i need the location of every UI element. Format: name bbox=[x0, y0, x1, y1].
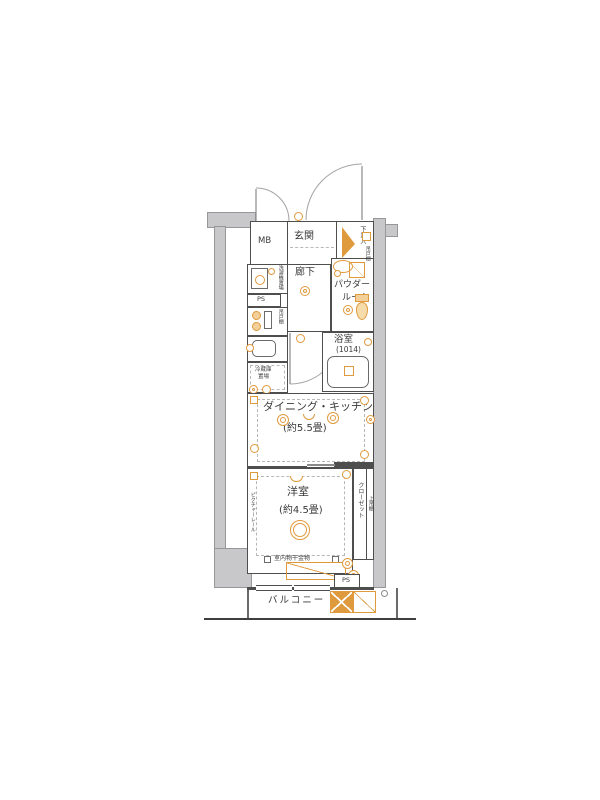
outlet-icon bbox=[366, 415, 375, 424]
doorbell-icon bbox=[294, 212, 303, 221]
switch-icon bbox=[250, 472, 258, 480]
wall-right-step bbox=[385, 224, 398, 237]
ps-lower-label: PS bbox=[342, 577, 350, 584]
outlet-icon bbox=[364, 338, 372, 346]
outlet-icon bbox=[360, 396, 369, 405]
window bbox=[294, 585, 330, 591]
grill-icon bbox=[264, 311, 272, 329]
mirror-cabinet-icon bbox=[349, 262, 365, 278]
outlet-icon bbox=[342, 470, 351, 479]
upper-shelf-label: 上吊棚 bbox=[367, 496, 373, 511]
outlet-icon bbox=[296, 334, 305, 343]
closet-label: クローゼット bbox=[356, 482, 363, 518]
entrance-step-line bbox=[290, 247, 334, 248]
switch-icon bbox=[250, 396, 258, 404]
powder-cupboard-label: 吊戸棚 bbox=[364, 246, 370, 261]
hall-light-icon bbox=[300, 286, 310, 296]
kitchen-cupboard-label: 吊戸棚 bbox=[277, 309, 283, 324]
picture-rail-label: ピクチャーレール bbox=[249, 492, 255, 532]
sliding-door-leaf bbox=[307, 464, 335, 466]
powder-light-icon bbox=[343, 305, 353, 315]
ceiling-light-icon bbox=[327, 412, 339, 424]
window bbox=[256, 585, 292, 591]
bracket-icon bbox=[264, 556, 271, 563]
outlet-icon bbox=[334, 270, 341, 277]
wall-left bbox=[214, 226, 226, 550]
washer-label: 洗濯機置場 bbox=[277, 265, 283, 290]
entrance-label: 玄関 bbox=[294, 231, 314, 243]
bathroom-size-label: (1014) bbox=[336, 346, 361, 355]
meter-box-label: MB bbox=[258, 237, 271, 247]
closet-upper-shelf bbox=[366, 468, 374, 560]
dk-size-label: (約5.5畳) bbox=[283, 423, 327, 435]
fridge-label-1: 冷蔵庫 bbox=[255, 367, 272, 373]
outlet-icon bbox=[268, 268, 275, 275]
balcony-label: バルコニー bbox=[268, 596, 325, 607]
wall-right bbox=[373, 218, 386, 588]
balcony-left-edge bbox=[247, 590, 249, 618]
evac-hatch-icon bbox=[330, 591, 353, 613]
outlet-icon bbox=[342, 558, 353, 569]
bedroom-light-icon bbox=[290, 520, 310, 540]
bedroom-label: 洋室 bbox=[287, 486, 309, 499]
fridge-label-2: 置場 bbox=[258, 374, 269, 380]
bath-faucet-icon bbox=[344, 366, 354, 376]
evac-hatch-icon bbox=[353, 591, 376, 613]
toilet-tank-icon bbox=[355, 294, 369, 302]
washing-machine-drum-icon bbox=[255, 275, 265, 285]
outlet-icon bbox=[360, 450, 369, 459]
faucet-icon bbox=[246, 344, 254, 352]
floor-plan: MB 玄関 下足入 廊下 洗濯機置場 PS 吊戸棚 冷蔵庫 置場 パウダー ルー… bbox=[0, 0, 600, 800]
dk-label: ダイニング・キッチン bbox=[263, 401, 373, 414]
stove-burner-icon bbox=[252, 311, 261, 320]
entrance-room bbox=[287, 221, 337, 265]
switch-icon bbox=[362, 232, 371, 241]
sink-icon bbox=[252, 340, 276, 357]
powder-room-label-1: パウダー bbox=[334, 280, 370, 290]
bedroom-size-label: (約4.5畳) bbox=[279, 505, 323, 517]
drain-icon bbox=[381, 590, 388, 597]
hallway-label: 廊下 bbox=[295, 267, 315, 279]
ps-upper-label: PS bbox=[257, 296, 265, 303]
boundary-line bbox=[204, 618, 416, 620]
balcony-right-edge bbox=[396, 588, 398, 618]
ceiling-light-icon bbox=[277, 414, 289, 426]
stove-burner-icon bbox=[252, 322, 261, 331]
outlet-icon bbox=[250, 444, 259, 453]
